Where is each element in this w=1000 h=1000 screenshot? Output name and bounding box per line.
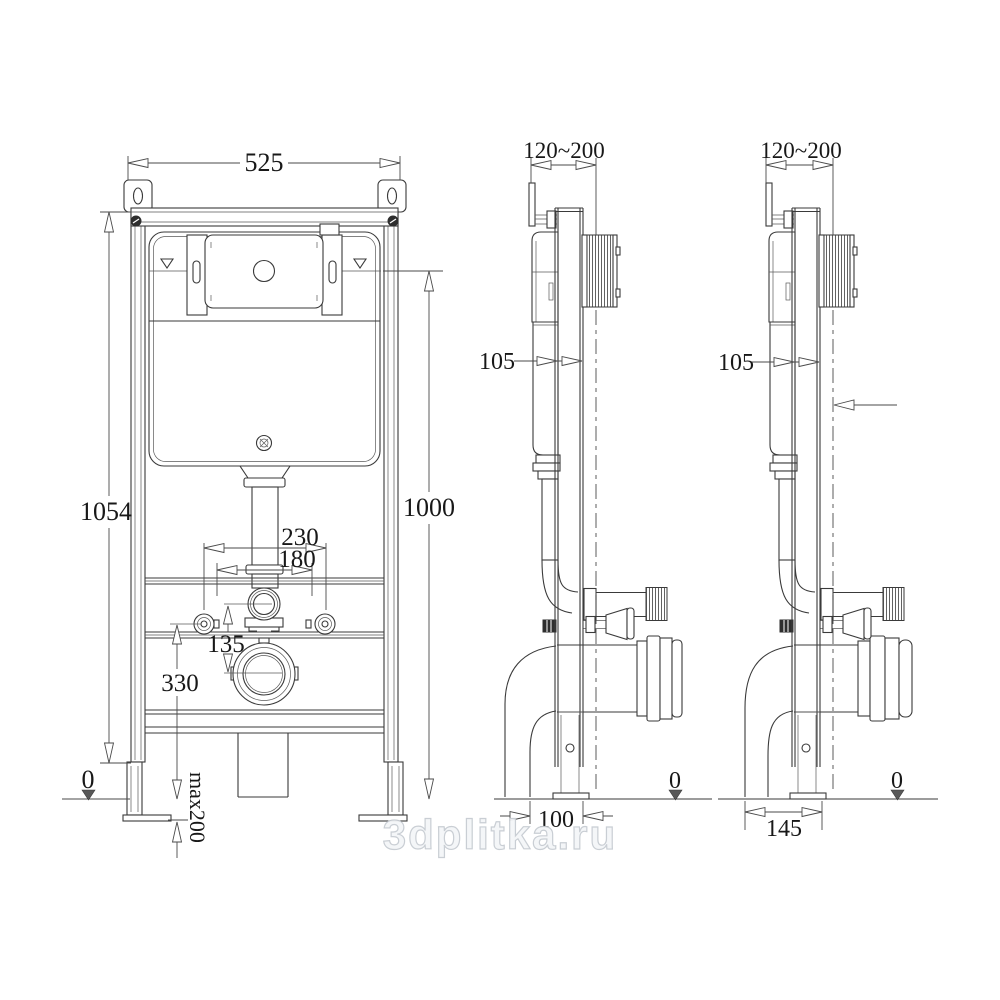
frame-rail-right <box>384 211 398 762</box>
frame-top-rail <box>131 208 398 226</box>
wall-section-hatch <box>819 235 857 307</box>
dim-label-width: 525 <box>245 148 284 177</box>
side-view-right: 120~200 105 145 0 <box>718 138 938 842</box>
datum-zero-side-left: 0 <box>669 768 682 800</box>
anchor-bolt <box>780 620 793 632</box>
dim-height-1054: 1054 <box>80 212 132 763</box>
watermark-text: 3dplitka.ru <box>383 811 617 858</box>
wall-section-hatch <box>582 235 620 307</box>
drain-duct <box>238 733 288 797</box>
dim-width-525: 525 <box>128 148 400 180</box>
cistern-profile <box>532 232 560 560</box>
datum-zero-front: 0 <box>62 765 130 800</box>
dim-label-depth: 105 <box>718 350 754 376</box>
dim-wall-range: 120~200 <box>523 138 604 183</box>
wall-pointer-arrow <box>834 400 897 410</box>
technical-drawing-page: 525 1054 1000 230 180 <box>0 0 1000 1000</box>
mounting-ear-right <box>378 180 406 212</box>
flush-elbow-side <box>542 560 578 613</box>
dim-wall-range: 120~200 <box>760 138 841 183</box>
dim-label-flush-to-drain: 135 <box>207 631 245 658</box>
dim-depth-105: 105 <box>718 350 819 376</box>
dim-label-wall-range: 120~200 <box>523 138 604 163</box>
front-view: 525 1054 1000 230 180 <box>62 148 455 858</box>
dim-label-leg-extension: max200 <box>185 772 210 843</box>
dim-base-145: 145 <box>745 801 822 842</box>
frame-rail-left <box>131 211 145 762</box>
datum-label-side-left: 0 <box>669 768 681 794</box>
dim-label-base-depth: 145 <box>766 816 802 842</box>
dim-label-stud-inner: 180 <box>278 546 316 573</box>
side-view-left: 120~200 105 100 0 <box>479 138 712 833</box>
datum-label-front: 0 <box>82 765 95 794</box>
fixing-stud-right <box>306 614 335 634</box>
wall-bracket <box>529 183 557 228</box>
dim-label-depth: 105 <box>479 349 515 375</box>
datum-label-side-right: 0 <box>891 768 903 794</box>
dim-label-flush-axis-height: 1000 <box>403 493 455 522</box>
dim-depth-105: 105 <box>479 349 582 375</box>
datum-zero-side-right: 0 <box>891 768 904 800</box>
flush-elbow-side <box>779 560 815 613</box>
cistern-profile <box>769 232 797 560</box>
drain-socket <box>557 636 682 721</box>
leg-left <box>123 762 171 821</box>
dim-label-drain-height: 330 <box>161 670 199 697</box>
dim-label-wall-range: 120~200 <box>760 138 841 163</box>
flush-elbow-outlet <box>224 588 283 631</box>
drain-bend <box>745 646 793 797</box>
anchor-bolt <box>543 620 556 632</box>
drain-socket <box>794 636 912 721</box>
filler-tab <box>320 224 339 235</box>
dim-label-height-total: 1054 <box>80 497 132 526</box>
installation-frame-drawing: 525 1054 1000 230 180 <box>0 0 1000 1000</box>
wall-bracket <box>766 183 794 228</box>
access-panel-box <box>187 224 342 315</box>
mounting-ear-left <box>124 180 152 212</box>
drain-bend <box>505 646 556 797</box>
